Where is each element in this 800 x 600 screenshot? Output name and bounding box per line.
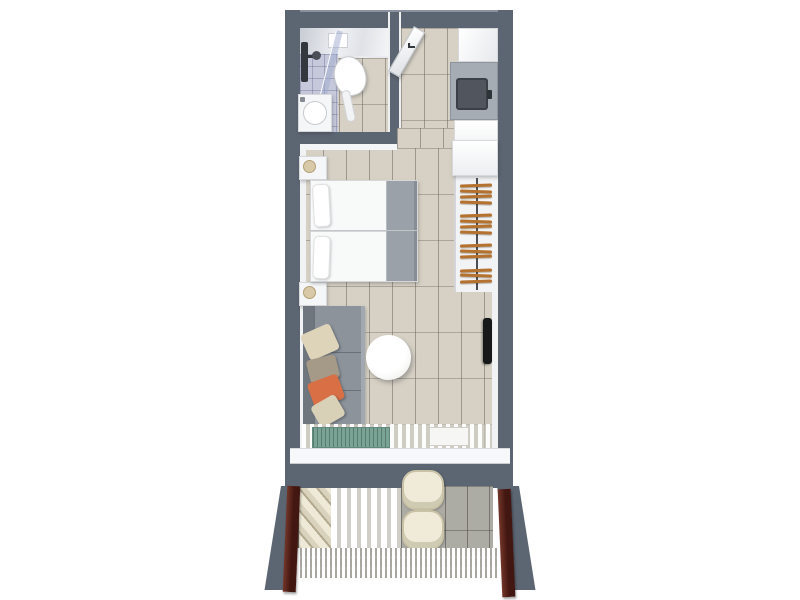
floor-plan-scene [0, 0, 800, 600]
wall-left-main [285, 148, 300, 468]
safe-handle-icon [487, 90, 492, 99]
tv [483, 318, 492, 364]
hanger-icon [460, 183, 492, 187]
wall-right-main [498, 148, 513, 468]
hanger-icon [460, 194, 492, 198]
shower-column-icon [301, 42, 308, 82]
hanger-icon [460, 230, 492, 234]
balcony-louver-screen [331, 488, 401, 554]
corridor-floor [397, 128, 458, 150]
teal-rug [312, 427, 390, 448]
nightstand-lamp-bottom [303, 286, 316, 299]
safe [456, 78, 488, 110]
window-sill [290, 448, 510, 464]
balcony-chair-2 [402, 510, 444, 550]
entry-cabinet-top [458, 28, 498, 62]
hanger-icon [460, 279, 492, 283]
main-wall-face-top [300, 144, 397, 150]
hanger-icon [460, 224, 492, 228]
washbasin-bowl [303, 101, 327, 125]
wall-band-bottom [285, 462, 513, 488]
hanger-icon [460, 219, 492, 223]
hanger-icon [460, 254, 492, 258]
shower-head-icon [312, 51, 321, 60]
hanger-icon [460, 243, 492, 247]
round-table [366, 335, 411, 380]
hanger-icon [460, 189, 492, 193]
hanger-icon [460, 213, 492, 217]
bed-pillow-2 [312, 236, 330, 280]
hanger-icon [460, 273, 492, 277]
hanger-icon [460, 249, 492, 253]
floor-inset [429, 427, 469, 446]
hanger-icon [460, 268, 492, 272]
wardrobe-hangers [458, 184, 494, 294]
wardrobe-top-shelf [452, 140, 498, 176]
bed-runner [386, 181, 417, 281]
washbasin-faucet-icon [300, 97, 305, 102]
hanger-icon [460, 200, 492, 204]
bed-split-line [310, 230, 418, 231]
balcony-floor-grating [297, 548, 499, 578]
balcony-chair-1 [402, 470, 444, 510]
nightstand-lamp-top [303, 160, 316, 173]
bed-pillow-1 [312, 184, 331, 228]
